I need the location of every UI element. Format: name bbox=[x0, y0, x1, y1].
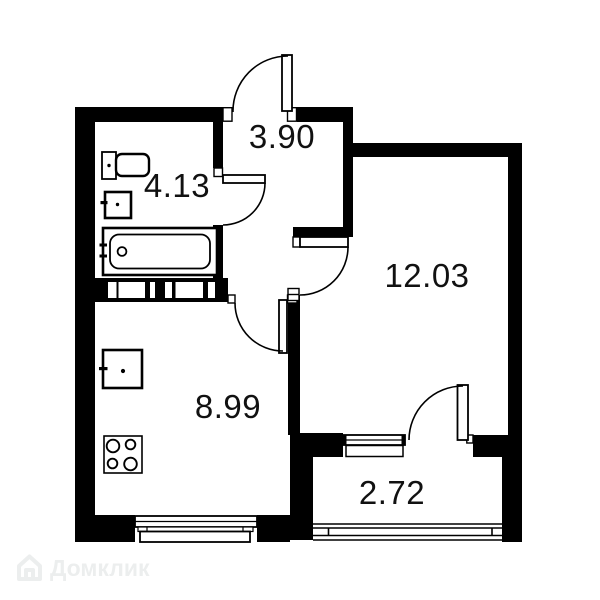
room-label-balcony: 2.72 bbox=[359, 474, 425, 512]
kitchen-window bbox=[135, 516, 257, 542]
kitchen-sink bbox=[99, 350, 142, 388]
room-label-bathroom: 4.13 bbox=[144, 167, 210, 205]
bathtub-tap bbox=[100, 244, 108, 247]
living-room-door-arc bbox=[300, 247, 348, 295]
shaft-slot bbox=[119, 282, 146, 298]
wall-outer-right-lower bbox=[502, 457, 522, 542]
kitchen-door-arc bbox=[235, 303, 283, 351]
wall-bottom-kitchen-left bbox=[75, 515, 135, 542]
bathroom-door-jamb bbox=[214, 168, 223, 177]
floor-plan: 3.90 4.13 12.03 8.99 2.72 Домклик bbox=[0, 0, 600, 600]
living-door-jamb-top bbox=[293, 237, 300, 247]
toilet-button bbox=[107, 164, 110, 167]
balcony-door-leaf bbox=[458, 385, 469, 440]
balcony-window-sill bbox=[346, 446, 403, 457]
kitchen-sink-drain bbox=[121, 369, 125, 373]
wall-top-bathroom bbox=[75, 107, 223, 122]
wall-balcony-left bbox=[290, 433, 313, 540]
wall-hall-living bbox=[343, 122, 353, 237]
shaft-slot bbox=[165, 282, 172, 298]
floor-plan-canvas bbox=[0, 0, 600, 600]
kitchen-door bbox=[235, 300, 287, 353]
bathroom-door-leaf bbox=[223, 175, 265, 183]
entrance-door-jamb-left bbox=[223, 108, 232, 122]
shaft-slot bbox=[108, 282, 117, 298]
shaft-slot bbox=[176, 282, 204, 298]
stove bbox=[104, 436, 142, 473]
wall-outer-right-upper bbox=[508, 143, 522, 435]
kitchen-sink-tap bbox=[99, 367, 108, 370]
wall-hall-living-jog bbox=[293, 227, 350, 237]
wall-bathroom-hall-upper bbox=[213, 122, 223, 168]
entrance-door-arc bbox=[233, 56, 288, 112]
living-room-door bbox=[300, 237, 348, 295]
watermark: Домклик bbox=[16, 553, 149, 583]
watermark-house-icon bbox=[16, 553, 43, 583]
bathtub bbox=[100, 228, 218, 275]
kitchen-door-leaf bbox=[279, 300, 287, 353]
balcony-door bbox=[409, 385, 468, 440]
wall-balcony-right-block bbox=[473, 435, 522, 457]
kitchen-window-sill bbox=[140, 532, 250, 543]
bathroom-door bbox=[223, 175, 265, 225]
bathroom-sink-tap bbox=[101, 201, 108, 204]
toilet bbox=[102, 152, 149, 179]
room-label-kitchen: 8.99 bbox=[195, 388, 261, 426]
bathroom-sink bbox=[101, 192, 132, 218]
wall-outer-left bbox=[75, 107, 95, 542]
wall-bottom-kitchen-right bbox=[257, 515, 290, 542]
balcony-window-cap bbox=[402, 435, 406, 445]
bathtub-tap bbox=[100, 255, 108, 258]
kitchen-door-jamb-left bbox=[228, 295, 235, 303]
bathtub-drain bbox=[118, 247, 127, 256]
balcony-door-arc bbox=[409, 386, 463, 440]
room-label-hallway: 3.90 bbox=[249, 118, 315, 156]
living-room-door-leaf bbox=[300, 237, 348, 247]
shaft-slot bbox=[150, 282, 155, 298]
wall-kitchen-living bbox=[288, 295, 300, 435]
balcony-glazing bbox=[313, 524, 502, 540]
balcony-window-cap bbox=[343, 435, 347, 445]
shaft-slot bbox=[208, 282, 215, 298]
watermark-text: Домклик bbox=[50, 555, 149, 582]
bathroom-door-arc bbox=[223, 183, 265, 225]
bathroom-sink-drain bbox=[116, 203, 119, 206]
balcony-window bbox=[343, 435, 405, 457]
wall-top-living bbox=[343, 143, 522, 157]
entrance-door-leaf bbox=[282, 55, 292, 111]
entrance-door bbox=[233, 55, 292, 112]
room-label-living-room: 12.03 bbox=[384, 257, 469, 295]
